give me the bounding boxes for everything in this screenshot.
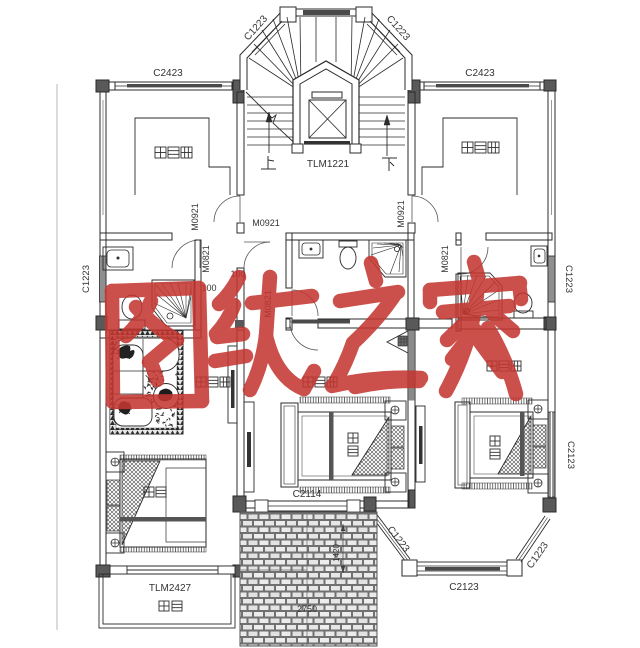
svg-text:C2114: C2114 [293,489,322,500]
svg-text:M0921: M0921 [252,218,280,228]
svg-text:1420: 1420 [332,544,341,562]
svg-text:C1223: C1223 [81,265,92,293]
svg-text:TLM1221: TLM1221 [307,159,350,170]
svg-text:C2123: C2123 [449,582,479,593]
svg-text:C1223: C1223 [563,265,574,293]
svg-text:C2123: C2123 [565,441,576,469]
svg-text:C2423: C2423 [153,68,183,79]
svg-text:C2423: C2423 [465,68,495,79]
svg-text:2750: 2750 [297,604,317,614]
svg-text:M0921: M0921 [190,203,200,231]
svg-text:M0821: M0821 [201,245,211,273]
svg-text:M0821: M0821 [440,245,450,273]
svg-text:M0921: M0921 [396,200,406,228]
svg-text:TLM2427: TLM2427 [149,583,192,594]
